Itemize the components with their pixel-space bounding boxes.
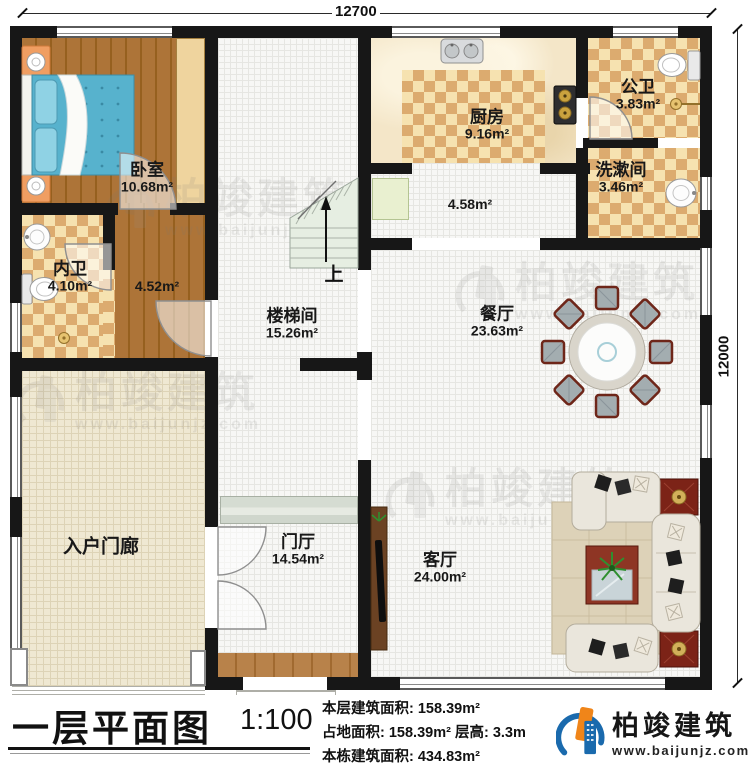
room-label-ensuite: 内卫4.10m² — [48, 260, 92, 295]
plan-scale: 1:100 — [240, 704, 313, 737]
window — [700, 405, 712, 458]
window — [10, 303, 22, 352]
room-label-foyer: 门厅14.54m² — [272, 533, 324, 568]
area-stats: 本层建筑面积: 158.39m² 占地面积: 158.39m² 层高: 3.3m… — [322, 698, 526, 770]
porch-column — [190, 650, 206, 686]
wall — [357, 352, 372, 380]
title-block: 一层平面图 1:100 本层建筑面积: 158.39m² 占地面积: 158.3… — [0, 695, 750, 778]
company-name: 柏竣建筑 — [612, 713, 750, 740]
plan-title: 一层平面图 — [12, 698, 212, 752]
door-opening — [205, 300, 218, 357]
room-label-washroom: 洗漱间3.46m² — [596, 161, 647, 196]
room-label-stairwell: 楼梯间15.26m² — [266, 307, 318, 342]
top-dimension-label: 12700 — [332, 3, 380, 20]
room-label-bedroom: 卧室10.68m² — [121, 161, 173, 196]
stair-up-label: 上 — [324, 260, 343, 287]
wall — [10, 358, 213, 371]
wall — [540, 238, 712, 250]
foyer-entry-mat — [218, 653, 358, 677]
wall — [358, 460, 371, 677]
stat-line: 本层建筑面积: 158.39m² — [322, 698, 526, 722]
window — [700, 177, 712, 210]
stat-line: 本栋建筑面积: 434.83m² — [322, 746, 526, 770]
room-label-kitchen: 厨房9.16m² — [465, 108, 509, 143]
right-dimension-label: 12000 — [715, 333, 732, 381]
wall — [358, 38, 371, 270]
wall — [583, 138, 658, 148]
room-label-porch: 入户门廊 — [63, 536, 139, 557]
wall — [10, 497, 22, 537]
wall — [103, 215, 115, 270]
right-dimension-line — [737, 30, 738, 684]
room-label-dining: 餐厅23.63m² — [471, 305, 523, 340]
room-label-living: 客厅24.00m² — [414, 551, 466, 586]
room-label-hallway: 4.58m² — [448, 197, 492, 213]
window — [613, 26, 678, 38]
window — [57, 26, 172, 38]
door-opening — [205, 527, 218, 628]
company-url: www.baijunjz.com — [612, 743, 750, 758]
title-underline — [8, 747, 310, 750]
company-logo: 柏竣建筑 www.baijunjz.com — [556, 705, 750, 765]
foyer-cabinet — [220, 496, 358, 524]
hallway-cabinet — [372, 178, 409, 220]
wall — [358, 238, 412, 250]
title-underline — [10, 753, 310, 754]
wall — [576, 38, 588, 98]
room-label-corridor: 4.52m² — [135, 279, 179, 295]
entry-door-opening — [243, 677, 327, 690]
porch-column — [10, 648, 28, 686]
ensuite-floor — [103, 268, 115, 358]
window — [400, 677, 665, 690]
wall — [700, 26, 712, 690]
porch-floor — [22, 370, 205, 686]
wall — [22, 203, 118, 215]
wardrobe — [176, 38, 205, 210]
stat-line: 占地面积: 158.39m² 层高: 3.3m — [322, 722, 526, 746]
window — [10, 537, 22, 648]
floor-plan-canvas: 12700 12000 柏竣建筑www.baijunjz.com 柏竣建筑www… — [0, 0, 750, 778]
window — [10, 397, 22, 497]
wall — [576, 148, 588, 238]
window — [392, 26, 500, 38]
wall — [170, 203, 205, 215]
wall — [358, 163, 412, 174]
company-logo-icon — [556, 705, 606, 765]
room-label-public-bath: 公卫3.83m² — [616, 78, 660, 113]
window — [700, 248, 712, 315]
dining-living-floor — [371, 250, 700, 677]
